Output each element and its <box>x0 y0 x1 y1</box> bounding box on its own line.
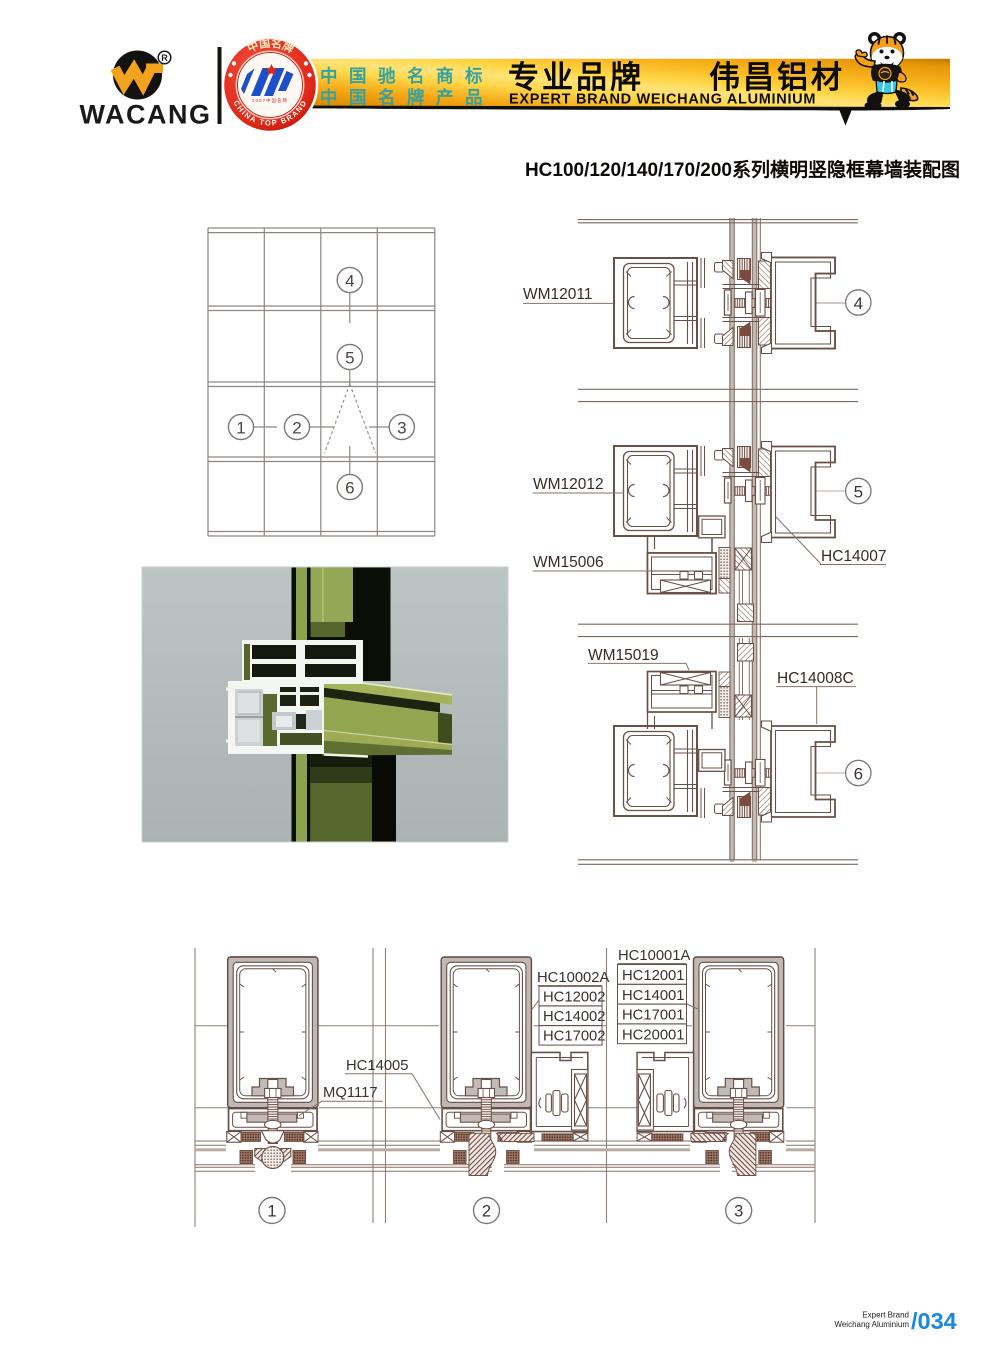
svg-text:WM15006: WM15006 <box>533 554 604 571</box>
svg-text:WACANG: WACANG <box>80 100 212 130</box>
svg-text:HC10001A: HC10001A <box>618 948 691 964</box>
svg-text:1: 1 <box>236 419 245 438</box>
svg-text:WM12012: WM12012 <box>533 476 604 493</box>
svg-text:HC10002A: HC10002A <box>537 970 610 986</box>
svg-text:6: 6 <box>854 765 863 784</box>
svg-text:2: 2 <box>482 1203 491 1221</box>
svg-text:HC14002: HC14002 <box>543 1009 606 1025</box>
svg-text:6: 6 <box>345 479 354 498</box>
svg-text:中国驰名商标: 中国驰名商标 <box>320 66 494 86</box>
svg-text:5: 5 <box>345 349 354 368</box>
svg-text:WM15019: WM15019 <box>588 647 659 664</box>
svg-text:5: 5 <box>854 483 863 502</box>
svg-text:Weichang Aluminium: Weichang Aluminium <box>834 1320 909 1329</box>
svg-text:WM12011: WM12011 <box>523 286 593 303</box>
svg-text:伟昌铝材: 伟昌铝材 <box>709 60 845 95</box>
svg-text:4: 4 <box>345 272 354 291</box>
svg-text:R: R <box>161 53 168 63</box>
svg-text:HC17002: HC17002 <box>543 1029 606 1045</box>
svg-text:HC100/120/140/170/200系列横明竖隐框幕墙: HC100/120/140/170/200系列横明竖隐框幕墙装配图 <box>525 158 960 181</box>
svg-text:4: 4 <box>854 294 863 313</box>
svg-text:MQ1117: MQ1117 <box>323 1085 378 1101</box>
svg-text:HC14007: HC14007 <box>821 548 887 565</box>
svg-text:专业品牌: 专业品牌 <box>508 60 644 95</box>
svg-text:HC14005: HC14005 <box>346 1058 409 1074</box>
svg-text:2007中国名牌: 2007中国名牌 <box>252 97 288 104</box>
svg-text:HC20001: HC20001 <box>622 1027 685 1043</box>
svg-text:Expert Brand: Expert Brand <box>862 1311 909 1320</box>
svg-text:HC12002: HC12002 <box>543 990 606 1006</box>
svg-text:3: 3 <box>397 419 406 438</box>
svg-text:HC14001: HC14001 <box>622 988 685 1004</box>
svg-text:HC17001: HC17001 <box>622 1008 685 1024</box>
svg-text:2: 2 <box>292 419 301 438</box>
svg-text:EXPERT BRAND WEICHANG ALUMINIU: EXPERT BRAND WEICHANG ALUMINIUM <box>509 92 816 108</box>
svg-text:HC14008C: HC14008C <box>777 670 854 687</box>
svg-text:HC12001: HC12001 <box>622 968 685 984</box>
svg-text:中国名牌产品: 中国名牌产品 <box>320 88 494 108</box>
svg-text:3: 3 <box>734 1203 743 1221</box>
svg-text:/034: /034 <box>911 1308 957 1334</box>
svg-text:1: 1 <box>267 1203 276 1221</box>
